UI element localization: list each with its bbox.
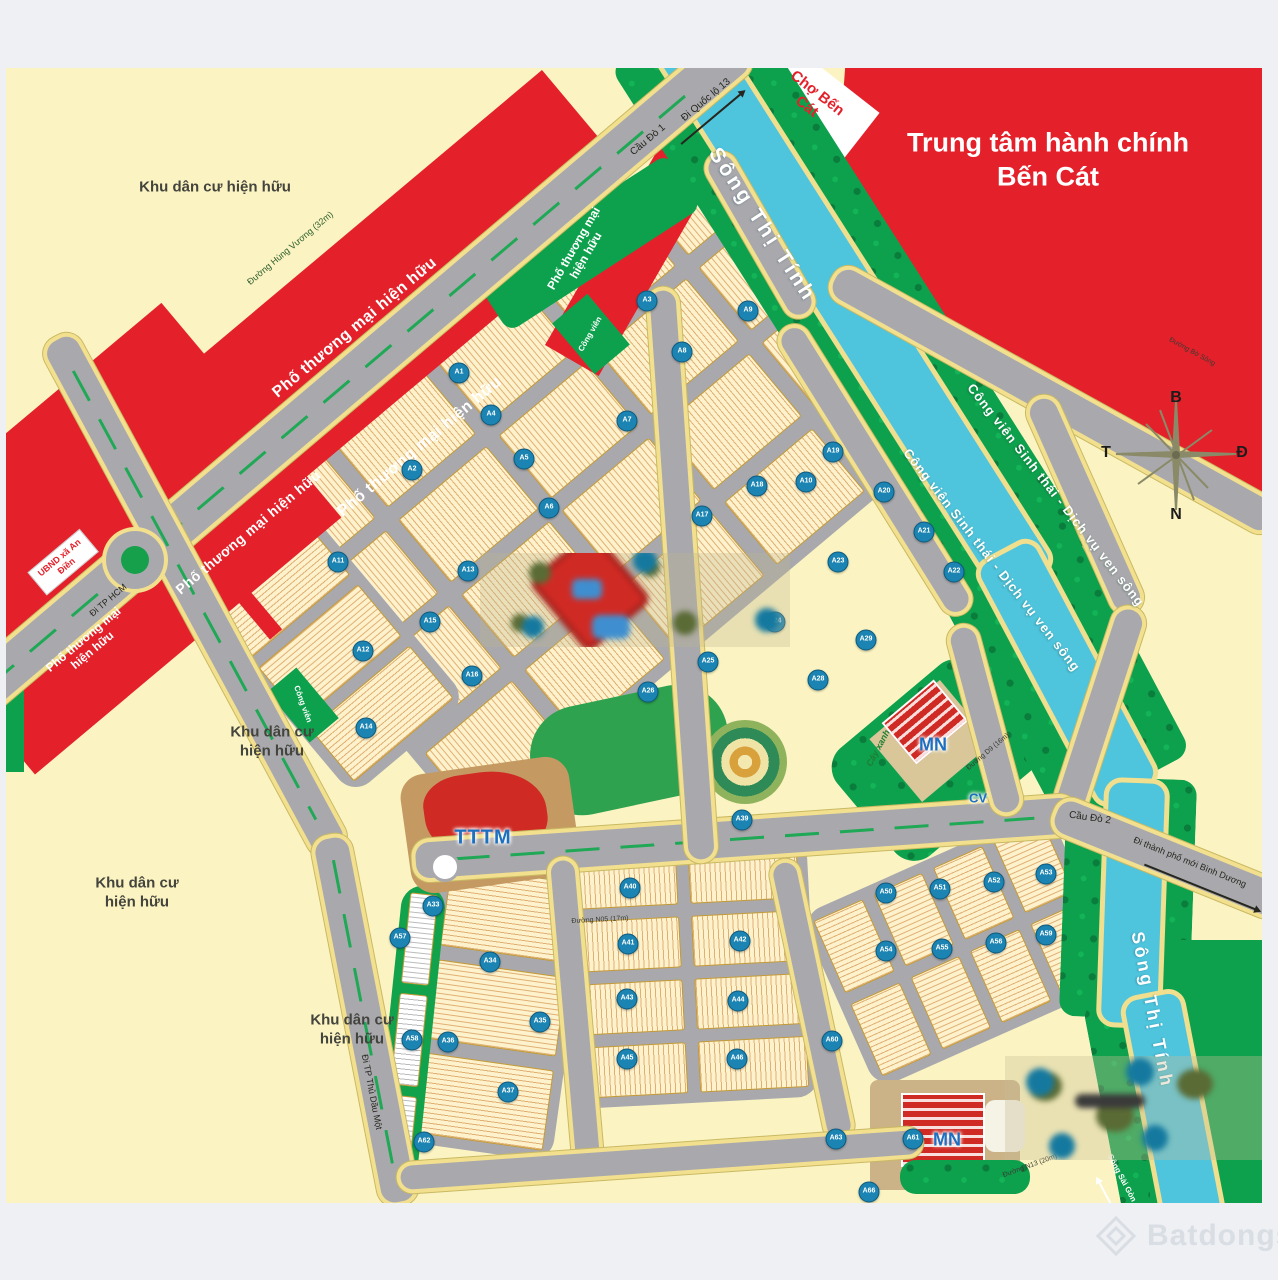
compass-north: B	[1170, 389, 1182, 407]
blurred-marker	[1126, 1058, 1154, 1086]
block-marker: A17	[692, 506, 713, 527]
block-marker: A57	[390, 928, 411, 949]
block-marker: A56	[986, 933, 1007, 954]
block-marker: A25	[698, 652, 719, 673]
block-marker: A53	[1036, 864, 1057, 885]
block-marker: A44	[728, 991, 749, 1012]
blurred-marker	[522, 616, 544, 638]
school-pool-1	[572, 579, 602, 599]
block-marker: A7	[617, 411, 638, 432]
watermark: Batdongsan	[1095, 1215, 1278, 1257]
block-marker: A26	[638, 682, 659, 703]
school-pool-2	[592, 615, 630, 639]
block-marker: A5	[514, 449, 535, 470]
block-marker: A19	[823, 442, 844, 463]
block-marker: A3	[637, 291, 658, 312]
block-marker: A1	[449, 363, 470, 384]
block-marker: A2	[402, 460, 423, 481]
block-marker: A61	[903, 1129, 924, 1150]
block-marker: A54	[876, 941, 897, 962]
dark-smudge	[1075, 1094, 1145, 1108]
blurred-riverside-area	[1005, 1056, 1278, 1160]
block-marker: A41	[618, 934, 639, 955]
block-marker: A58	[402, 1030, 423, 1051]
watermark-logo-icon	[1095, 1215, 1137, 1257]
block-marker: A52	[984, 872, 1005, 893]
block-marker: A60	[822, 1031, 843, 1052]
block-marker: A12	[353, 641, 374, 662]
block-marker: A6	[539, 498, 560, 519]
block-marker: A42	[730, 931, 751, 952]
blurred-marker	[1049, 1133, 1075, 1159]
block-marker: A23	[828, 552, 849, 573]
blurred-school-area	[480, 553, 790, 647]
compass-west: T	[1101, 444, 1111, 462]
block-marker: A8	[672, 342, 693, 363]
block-marker: A50	[876, 883, 897, 904]
block-marker: A33	[423, 896, 444, 917]
block-marker: A13	[458, 561, 479, 582]
screenshot-root: { "title": "Trung tâm hành chính Bến Cát…	[0, 0, 1278, 1280]
block-marker: A18	[747, 476, 768, 497]
compass-south: N	[1170, 506, 1182, 524]
block-marker: A4	[481, 405, 502, 426]
block-marker: A20	[874, 482, 895, 503]
block-marker: A28	[808, 670, 829, 691]
block-marker: A45	[617, 1049, 638, 1070]
block-marker: A46	[727, 1049, 748, 1070]
block-marker: A22	[944, 562, 965, 583]
blurred-marker	[755, 608, 779, 632]
block-marker: A15	[420, 612, 441, 633]
map-stage: Trung tâm hành chính Bến Cát Chợ Bến Cát…	[0, 0, 1278, 1280]
block-marker: A66	[859, 1182, 880, 1203]
compass-east: Đ	[1236, 444, 1248, 462]
block-marker: A63	[826, 1129, 847, 1150]
block-marker: A55	[932, 939, 953, 960]
block-marker: A43	[617, 989, 638, 1010]
block-marker: A59	[1036, 925, 1057, 946]
block-marker: A16	[462, 666, 483, 687]
tree-blob	[1177, 1069, 1213, 1099]
watermark-text: Batdongsan	[1147, 1219, 1278, 1253]
block-marker: A34	[480, 952, 501, 973]
block-marker: A36	[438, 1032, 459, 1053]
block-marker: A29	[856, 630, 877, 651]
blurred-marker	[1026, 1068, 1054, 1096]
blurred-marker	[1142, 1125, 1168, 1151]
block-marker: A10	[796, 472, 817, 493]
blurred-school-content	[480, 553, 790, 647]
block-marker: A35	[530, 1012, 551, 1033]
tree-blob	[529, 562, 551, 584]
block-marker: A62	[414, 1132, 435, 1153]
block-marker: A21	[914, 522, 935, 543]
block-marker: A51	[930, 879, 951, 900]
block-marker: A39	[732, 810, 753, 831]
block-marker: A11	[328, 552, 349, 573]
block-marker: A14	[356, 718, 377, 739]
block-marker: A37	[498, 1082, 519, 1103]
block-marker: A40	[620, 878, 641, 899]
block-marker: A9	[738, 301, 759, 322]
blurred-riverside-content	[1005, 1056, 1278, 1160]
compass-star	[1108, 388, 1248, 523]
compass-rose	[1108, 388, 1248, 523]
tree-blob	[673, 611, 697, 635]
